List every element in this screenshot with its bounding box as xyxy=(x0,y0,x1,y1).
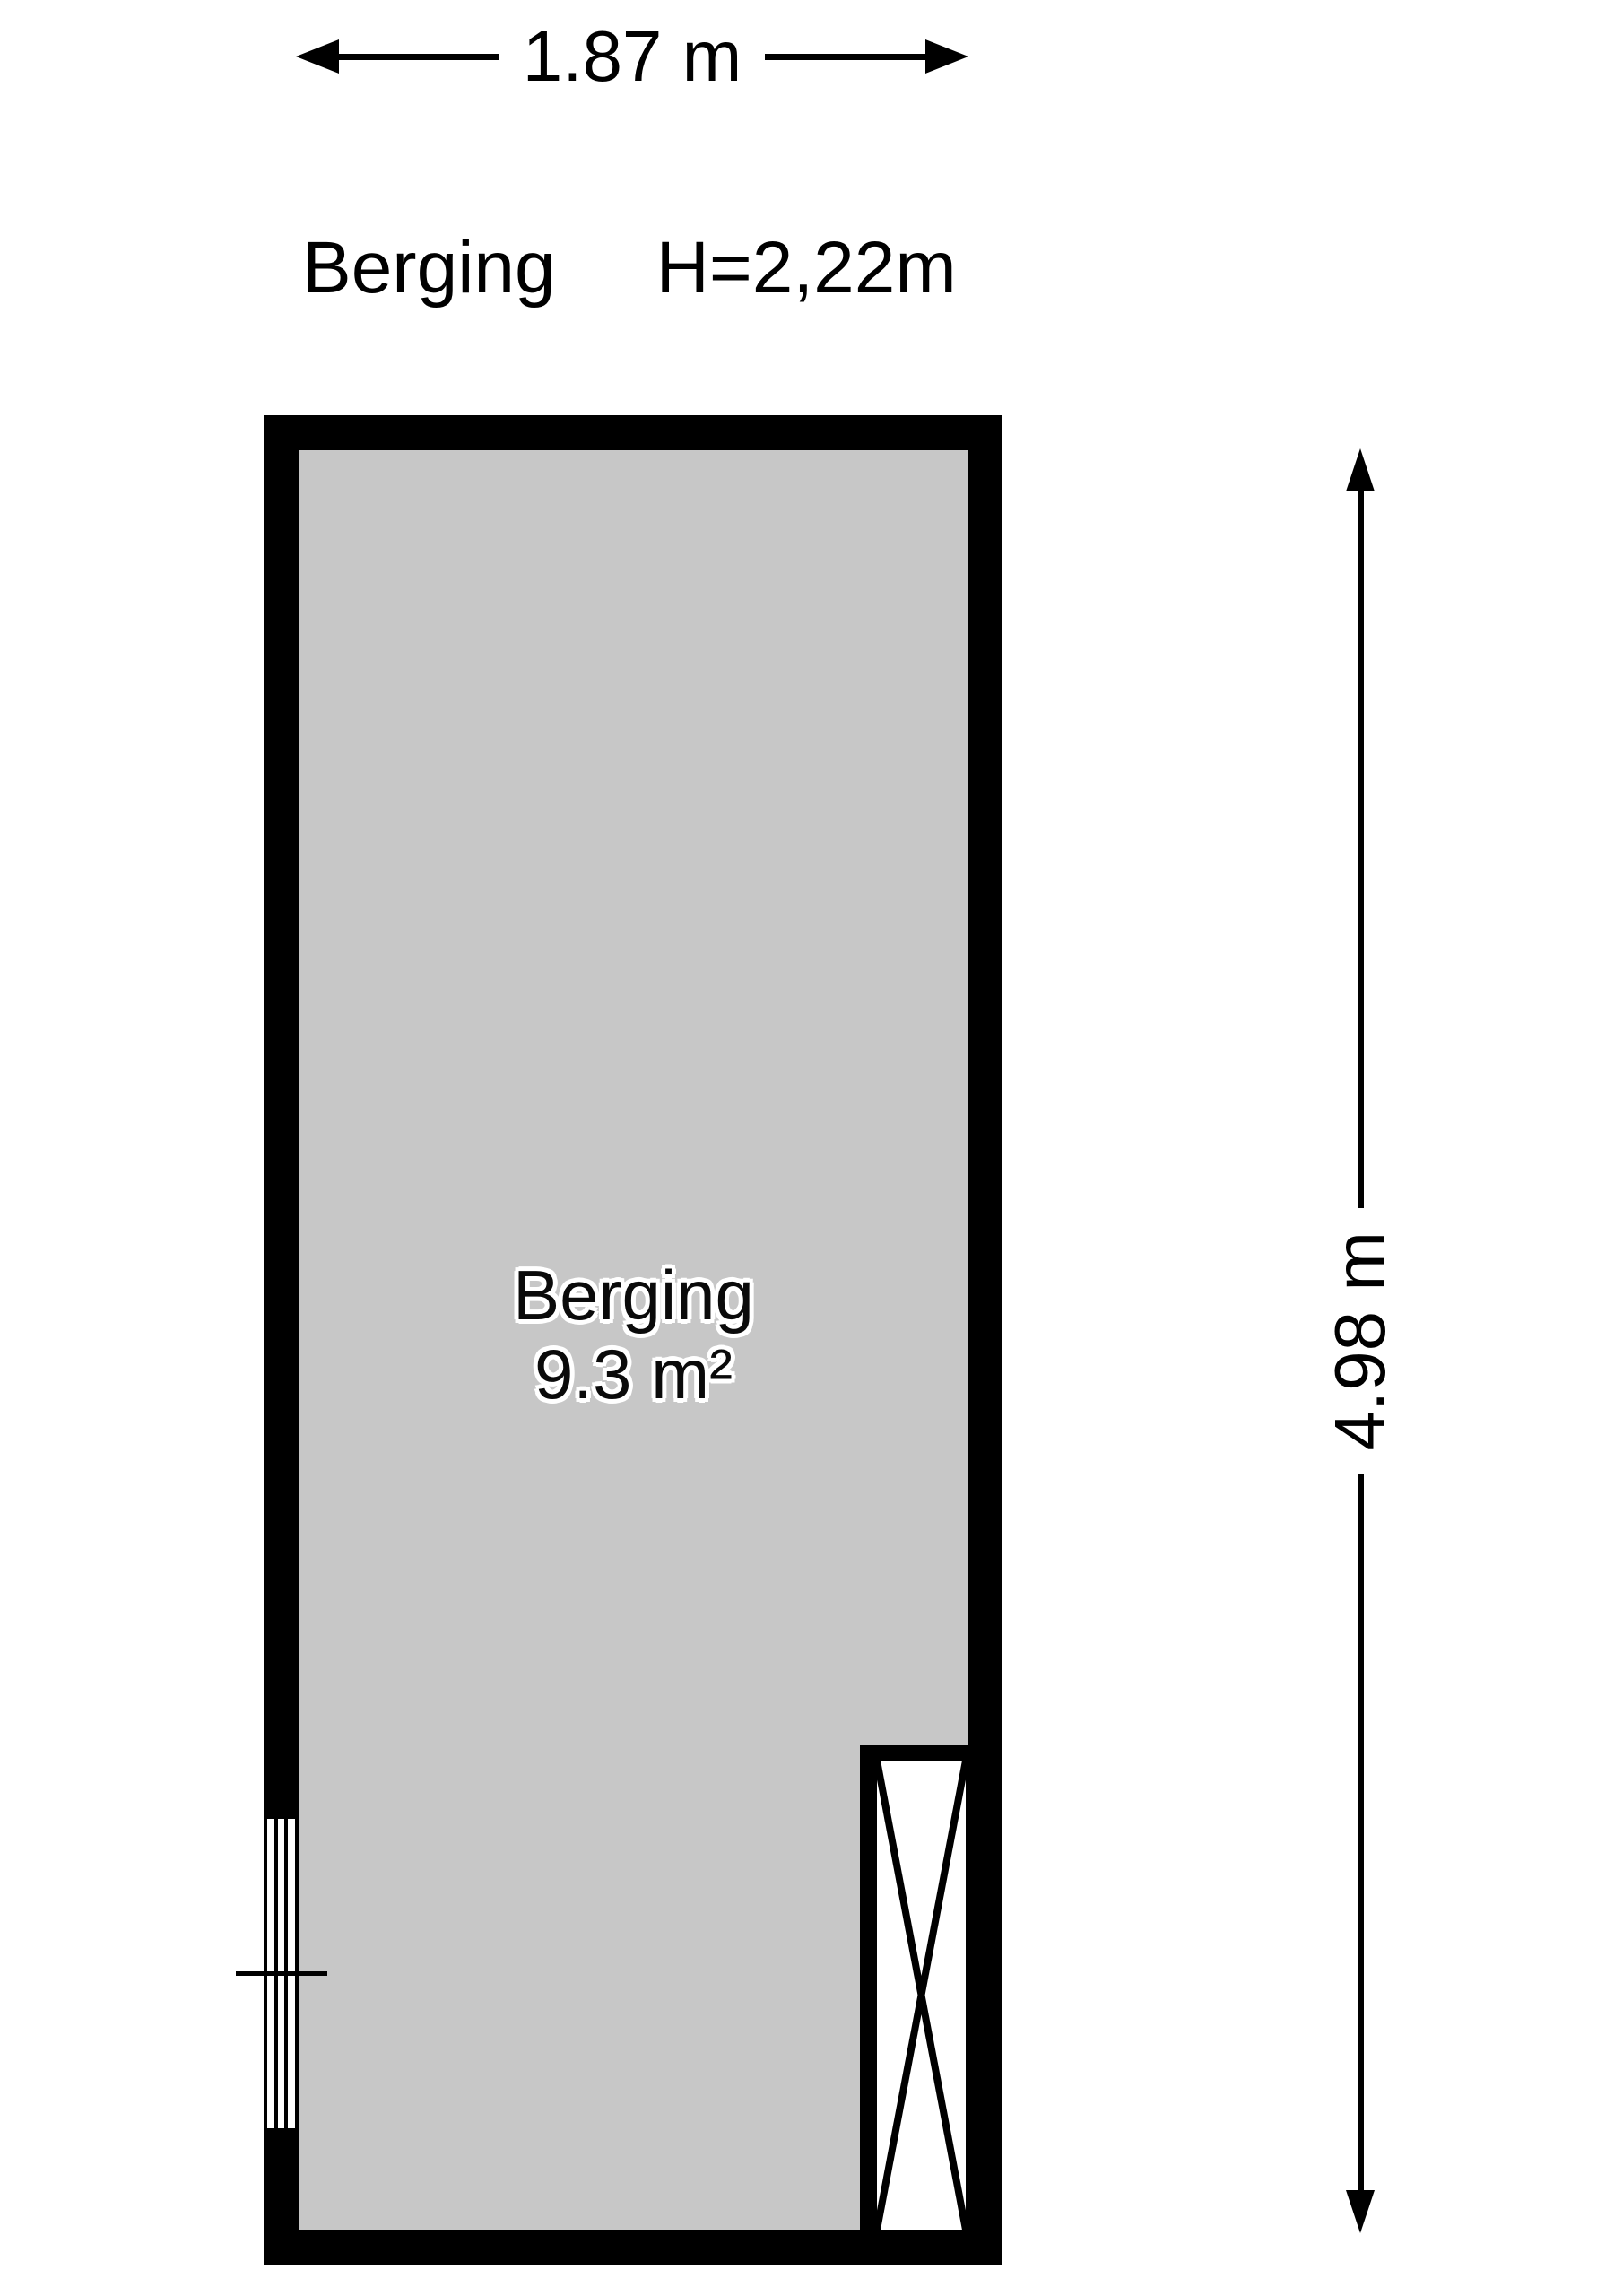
width-dimension-label: 1.87 m xyxy=(499,21,766,92)
width-dimension: 1.87 m xyxy=(296,7,968,106)
height-dimension-line-bottom xyxy=(1358,1474,1364,2190)
arrow-left-icon xyxy=(296,39,339,74)
room-label-area: 9.3 m² xyxy=(299,1335,968,1413)
width-dimension-line-right xyxy=(765,54,925,60)
width-dimension-line-left xyxy=(339,54,499,60)
room-title: Berging xyxy=(302,228,556,309)
arrow-right-icon xyxy=(925,39,968,74)
height-dimension-label: 4.98 m xyxy=(1324,1208,1396,1474)
height-dimension: 4.98 m xyxy=(1335,448,1385,2233)
ceiling-height-label: H=2,22m xyxy=(656,228,957,309)
floorplan-canvas: 1.87 m Berging H=2,22m Berging 9.3 m² xyxy=(0,0,1623,2296)
room-label-name: Berging xyxy=(299,1256,968,1335)
window-tick-mark xyxy=(236,1971,327,1976)
shaft-cross-icon xyxy=(877,1761,966,2230)
room-label: Berging 9.3 m² xyxy=(299,1256,968,1413)
arrow-down-icon xyxy=(1346,2190,1375,2233)
shaft-box xyxy=(860,1745,1002,2265)
plan-title-row: Berging H=2,22m xyxy=(302,228,957,309)
height-dimension-line-top xyxy=(1358,491,1364,1208)
arrow-up-icon xyxy=(1346,448,1375,491)
